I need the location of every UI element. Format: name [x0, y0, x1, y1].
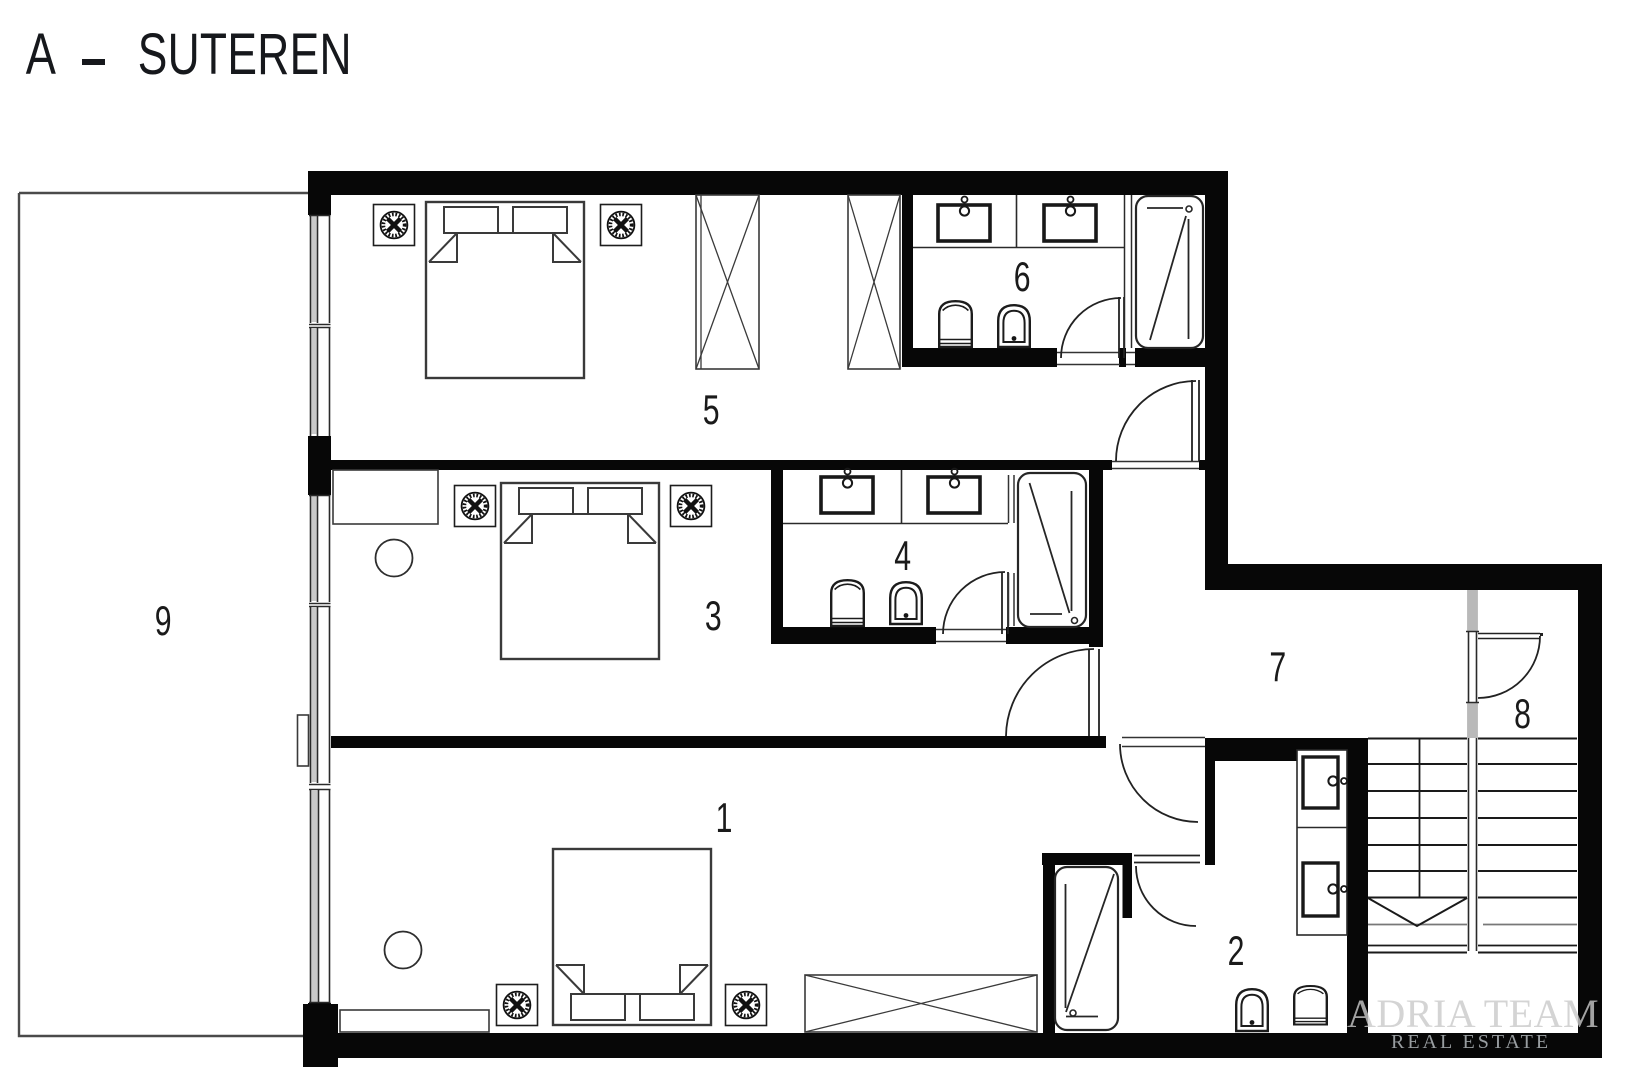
- svg-text:5: 5: [703, 386, 720, 433]
- svg-text:6: 6: [1014, 253, 1031, 300]
- svg-text:3: 3: [705, 592, 722, 639]
- svg-text:1: 1: [716, 794, 733, 841]
- svg-text:4: 4: [894, 532, 911, 579]
- svg-text:ADRIA TEAM: ADRIA TEAM: [1347, 991, 1599, 1036]
- svg-text:9: 9: [155, 597, 172, 644]
- svg-text:REAL ESTATE: REAL ESTATE: [1391, 1031, 1551, 1053]
- svg-text:7: 7: [1269, 643, 1286, 690]
- svg-text:A: A: [26, 23, 56, 88]
- svg-text:8: 8: [1514, 690, 1531, 737]
- svg-text:2: 2: [1228, 927, 1245, 974]
- svg-text:SUTEREN: SUTEREN: [138, 21, 352, 86]
